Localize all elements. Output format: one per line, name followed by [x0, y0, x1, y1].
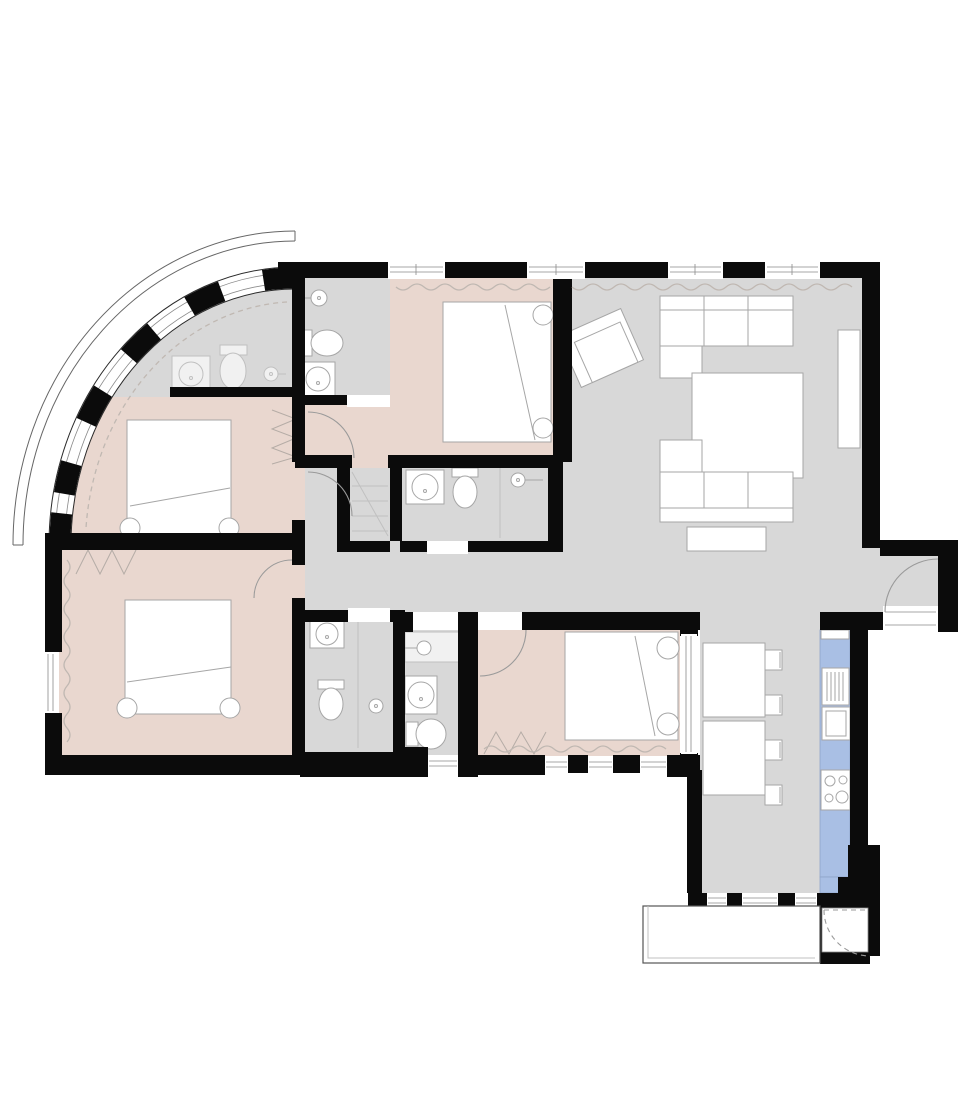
door-gap-vestibule — [352, 455, 388, 468]
chair — [765, 650, 782, 670]
toilet — [452, 468, 478, 508]
pillow — [220, 698, 240, 718]
dining-table-bottom — [703, 721, 765, 795]
pillow — [533, 305, 553, 325]
bathroom-bottom-left-door — [348, 608, 390, 622]
balcony-door-room — [822, 908, 870, 956]
floor-plan-canvas — [0, 0, 960, 1115]
dining-table-top — [703, 643, 765, 717]
sink — [172, 356, 210, 392]
window-bedroom-bottom-2 — [588, 756, 613, 773]
bathroom-bottom-right-door — [413, 612, 458, 630]
bathroom-central-door — [427, 541, 468, 554]
bedroom-top-furniture — [443, 302, 553, 442]
balcony-deck — [643, 906, 820, 963]
sofa-bottom-corner — [660, 440, 702, 472]
oven — [822, 707, 850, 740]
toilet — [220, 345, 247, 389]
chair — [765, 785, 782, 805]
window-top-3 — [668, 261, 723, 279]
entrance-nook-floor — [862, 548, 938, 612]
bed-top — [443, 302, 551, 442]
pillow — [657, 713, 679, 735]
counter-end-panel — [821, 630, 849, 639]
window-top-4 — [765, 261, 820, 279]
toilet — [303, 330, 343, 356]
pillow — [657, 637, 679, 659]
bed-lower-left — [125, 600, 231, 714]
door-gap-bedroom-lower-left — [292, 565, 305, 598]
sideboard — [838, 330, 860, 448]
window-bedroom-dining-partition — [681, 634, 697, 754]
floor-plan — [0, 0, 960, 1115]
round-basin — [405, 676, 437, 714]
window-left-wall — [43, 652, 59, 713]
sink — [303, 362, 335, 396]
washer-counter — [405, 632, 467, 662]
chair — [765, 740, 782, 760]
bathtub — [406, 719, 446, 749]
bedroom-bottom-door-threshold — [478, 612, 522, 630]
pillow — [533, 418, 553, 438]
bed-upper-left — [127, 420, 231, 534]
shower-head — [369, 699, 383, 713]
sofa-bottom — [660, 472, 793, 522]
window-bedroom-bottom-1 — [545, 756, 568, 773]
pillow — [117, 698, 137, 718]
door-gap-bedroom-upper-left — [292, 462, 305, 520]
window-bathroom-south — [428, 755, 458, 772]
entrance-door-threshold — [883, 606, 938, 632]
sink — [310, 620, 344, 648]
sofa-top — [660, 296, 793, 346]
kitchen-sink — [822, 668, 849, 705]
sink — [406, 470, 444, 504]
window-top-2 — [527, 261, 585, 279]
tv-bench — [687, 527, 766, 551]
toilet — [318, 680, 344, 720]
kitchen-counter — [820, 630, 850, 877]
cooktop — [821, 770, 850, 810]
chair — [765, 695, 782, 715]
coffee-table — [692, 373, 803, 478]
bathroom-top-door — [347, 395, 390, 407]
window-top-1 — [388, 261, 445, 279]
window-bedroom-bottom-3 — [640, 756, 667, 773]
